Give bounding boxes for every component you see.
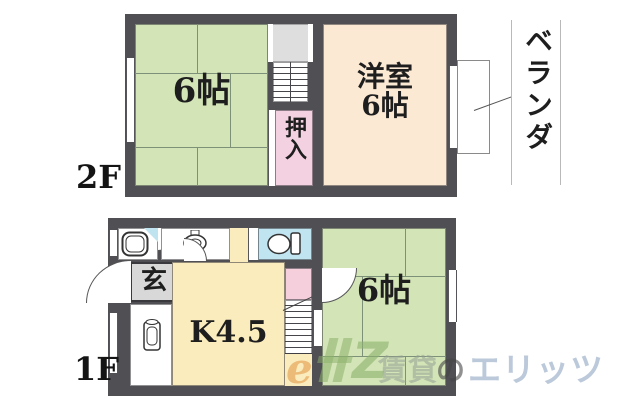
tatami-line: [135, 147, 268, 148]
entrance-box: 玄: [130, 262, 178, 302]
room-western-2f: 洋室 6帖: [323, 24, 447, 186]
watermark-logo-crossbar: [317, 356, 353, 363]
tatami-line: [197, 147, 198, 186]
closet-label: 押入: [278, 116, 310, 160]
floor-label-2f: 2F: [76, 158, 121, 196]
floor-plan-2f: 6帖 押入 洋室 6帖: [125, 14, 457, 197]
room-tatami-2f: 6帖: [135, 24, 268, 186]
stair-center-line: [290, 62, 291, 102]
toilet-icon: [266, 231, 302, 257]
bathroom-window: [109, 230, 118, 256]
stair-rail: [308, 24, 313, 62]
room-bathroom: [118, 228, 158, 260]
room-label-western: 洋室 6帖: [323, 62, 447, 121]
room-toilet: [258, 228, 312, 260]
floorplan-canvas: 6帖 押入 洋室 6帖 ベランダ 2F: [0, 0, 640, 416]
tatami-line: [405, 228, 406, 276]
western-room-size: 6帖: [361, 89, 408, 122]
room-closet-2f: 押入: [275, 110, 313, 186]
watermark-logo-e: e: [286, 344, 313, 393]
bathroom-corner: [144, 228, 158, 242]
room-label-tatami-2f: 6帖: [135, 74, 268, 110]
stair-rail: [268, 24, 273, 62]
tatami-line: [197, 24, 198, 73]
stair-landing-2f: [268, 24, 313, 62]
kitchen-label: K4.5: [172, 317, 285, 349]
watermark-text-rental: 賃貸: [378, 347, 438, 389]
balcony-label: ベランダ: [517, 26, 557, 184]
balcony-guideline-left: [511, 20, 512, 185]
water-heater-icon: [142, 318, 162, 352]
stairs-2f: [273, 62, 308, 102]
window-left-2f: [126, 58, 135, 142]
entrance-door-arc: [86, 260, 131, 303]
balcony-guideline-right: [560, 20, 561, 185]
entrance-label: 玄: [132, 268, 176, 295]
western-room-name: 洋室: [357, 60, 413, 93]
floor-label-1f: 1F: [74, 350, 119, 388]
stairs-upper-1f: [285, 268, 312, 300]
window-right-1f: [448, 270, 457, 322]
watermark-text-elitz: エリッツ: [468, 343, 604, 391]
utility-area: [130, 304, 172, 386]
watermark-text-no: の: [436, 347, 465, 389]
room-kitchen: K4.5: [172, 262, 285, 386]
